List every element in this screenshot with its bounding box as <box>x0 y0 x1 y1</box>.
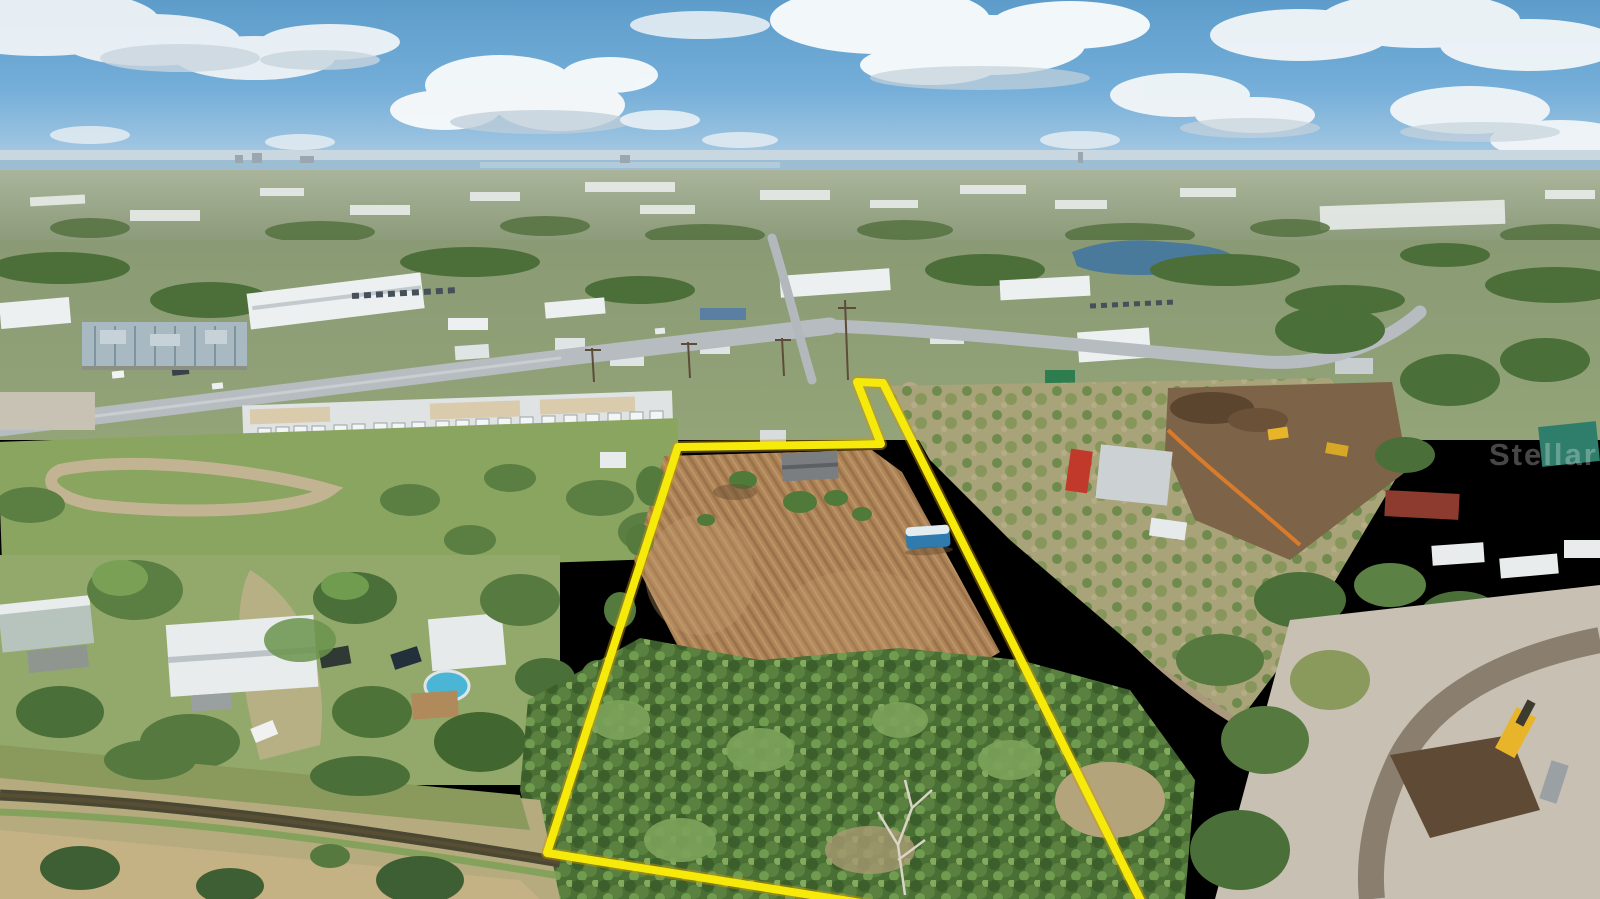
mls-watermark: Stellar MLS <box>1489 437 1600 472</box>
camper-trailer <box>903 524 953 556</box>
distant-suburb-band <box>0 170 1600 247</box>
dark-red-container <box>1384 490 1459 520</box>
white-car <box>212 382 224 389</box>
west-residential <box>0 555 575 785</box>
small-shed <box>600 452 626 468</box>
aerial-photo-canvas: Stellar MLS <box>0 0 1600 899</box>
pool-deck <box>411 690 459 719</box>
aerial-photo: Stellar MLS <box>0 0 1600 899</box>
metal-warehouse <box>1095 444 1172 505</box>
scrub-patch <box>1290 650 1370 710</box>
white-car <box>655 328 665 335</box>
white-car <box>112 370 125 378</box>
carport <box>428 613 506 671</box>
gravel-lot <box>0 392 95 430</box>
